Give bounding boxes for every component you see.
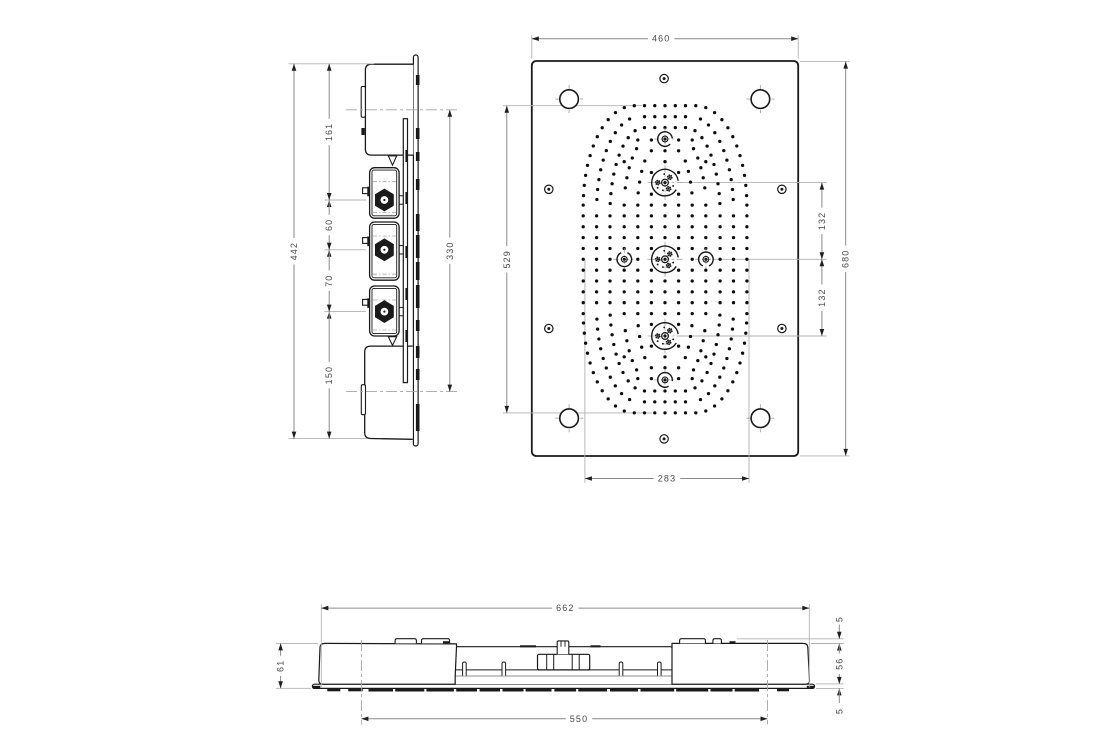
svg-text:5: 5 (834, 616, 844, 622)
svg-text:283: 283 (658, 474, 676, 484)
svg-text:60: 60 (324, 219, 334, 231)
svg-text:550: 550 (570, 714, 588, 724)
svg-text:442: 442 (289, 242, 299, 260)
svg-text:56: 56 (834, 658, 844, 670)
svg-text:680: 680 (841, 250, 851, 268)
svg-text:70: 70 (324, 275, 334, 287)
svg-text:132: 132 (817, 288, 827, 306)
svg-text:529: 529 (502, 250, 512, 268)
svg-text:330: 330 (445, 241, 455, 259)
svg-text:5: 5 (834, 708, 844, 714)
svg-text:460: 460 (652, 34, 670, 44)
svg-text:132: 132 (817, 212, 827, 230)
svg-text:150: 150 (324, 366, 334, 384)
svg-text:61: 61 (276, 660, 286, 672)
svg-text:662: 662 (556, 603, 574, 613)
svg-text:161: 161 (324, 123, 334, 141)
